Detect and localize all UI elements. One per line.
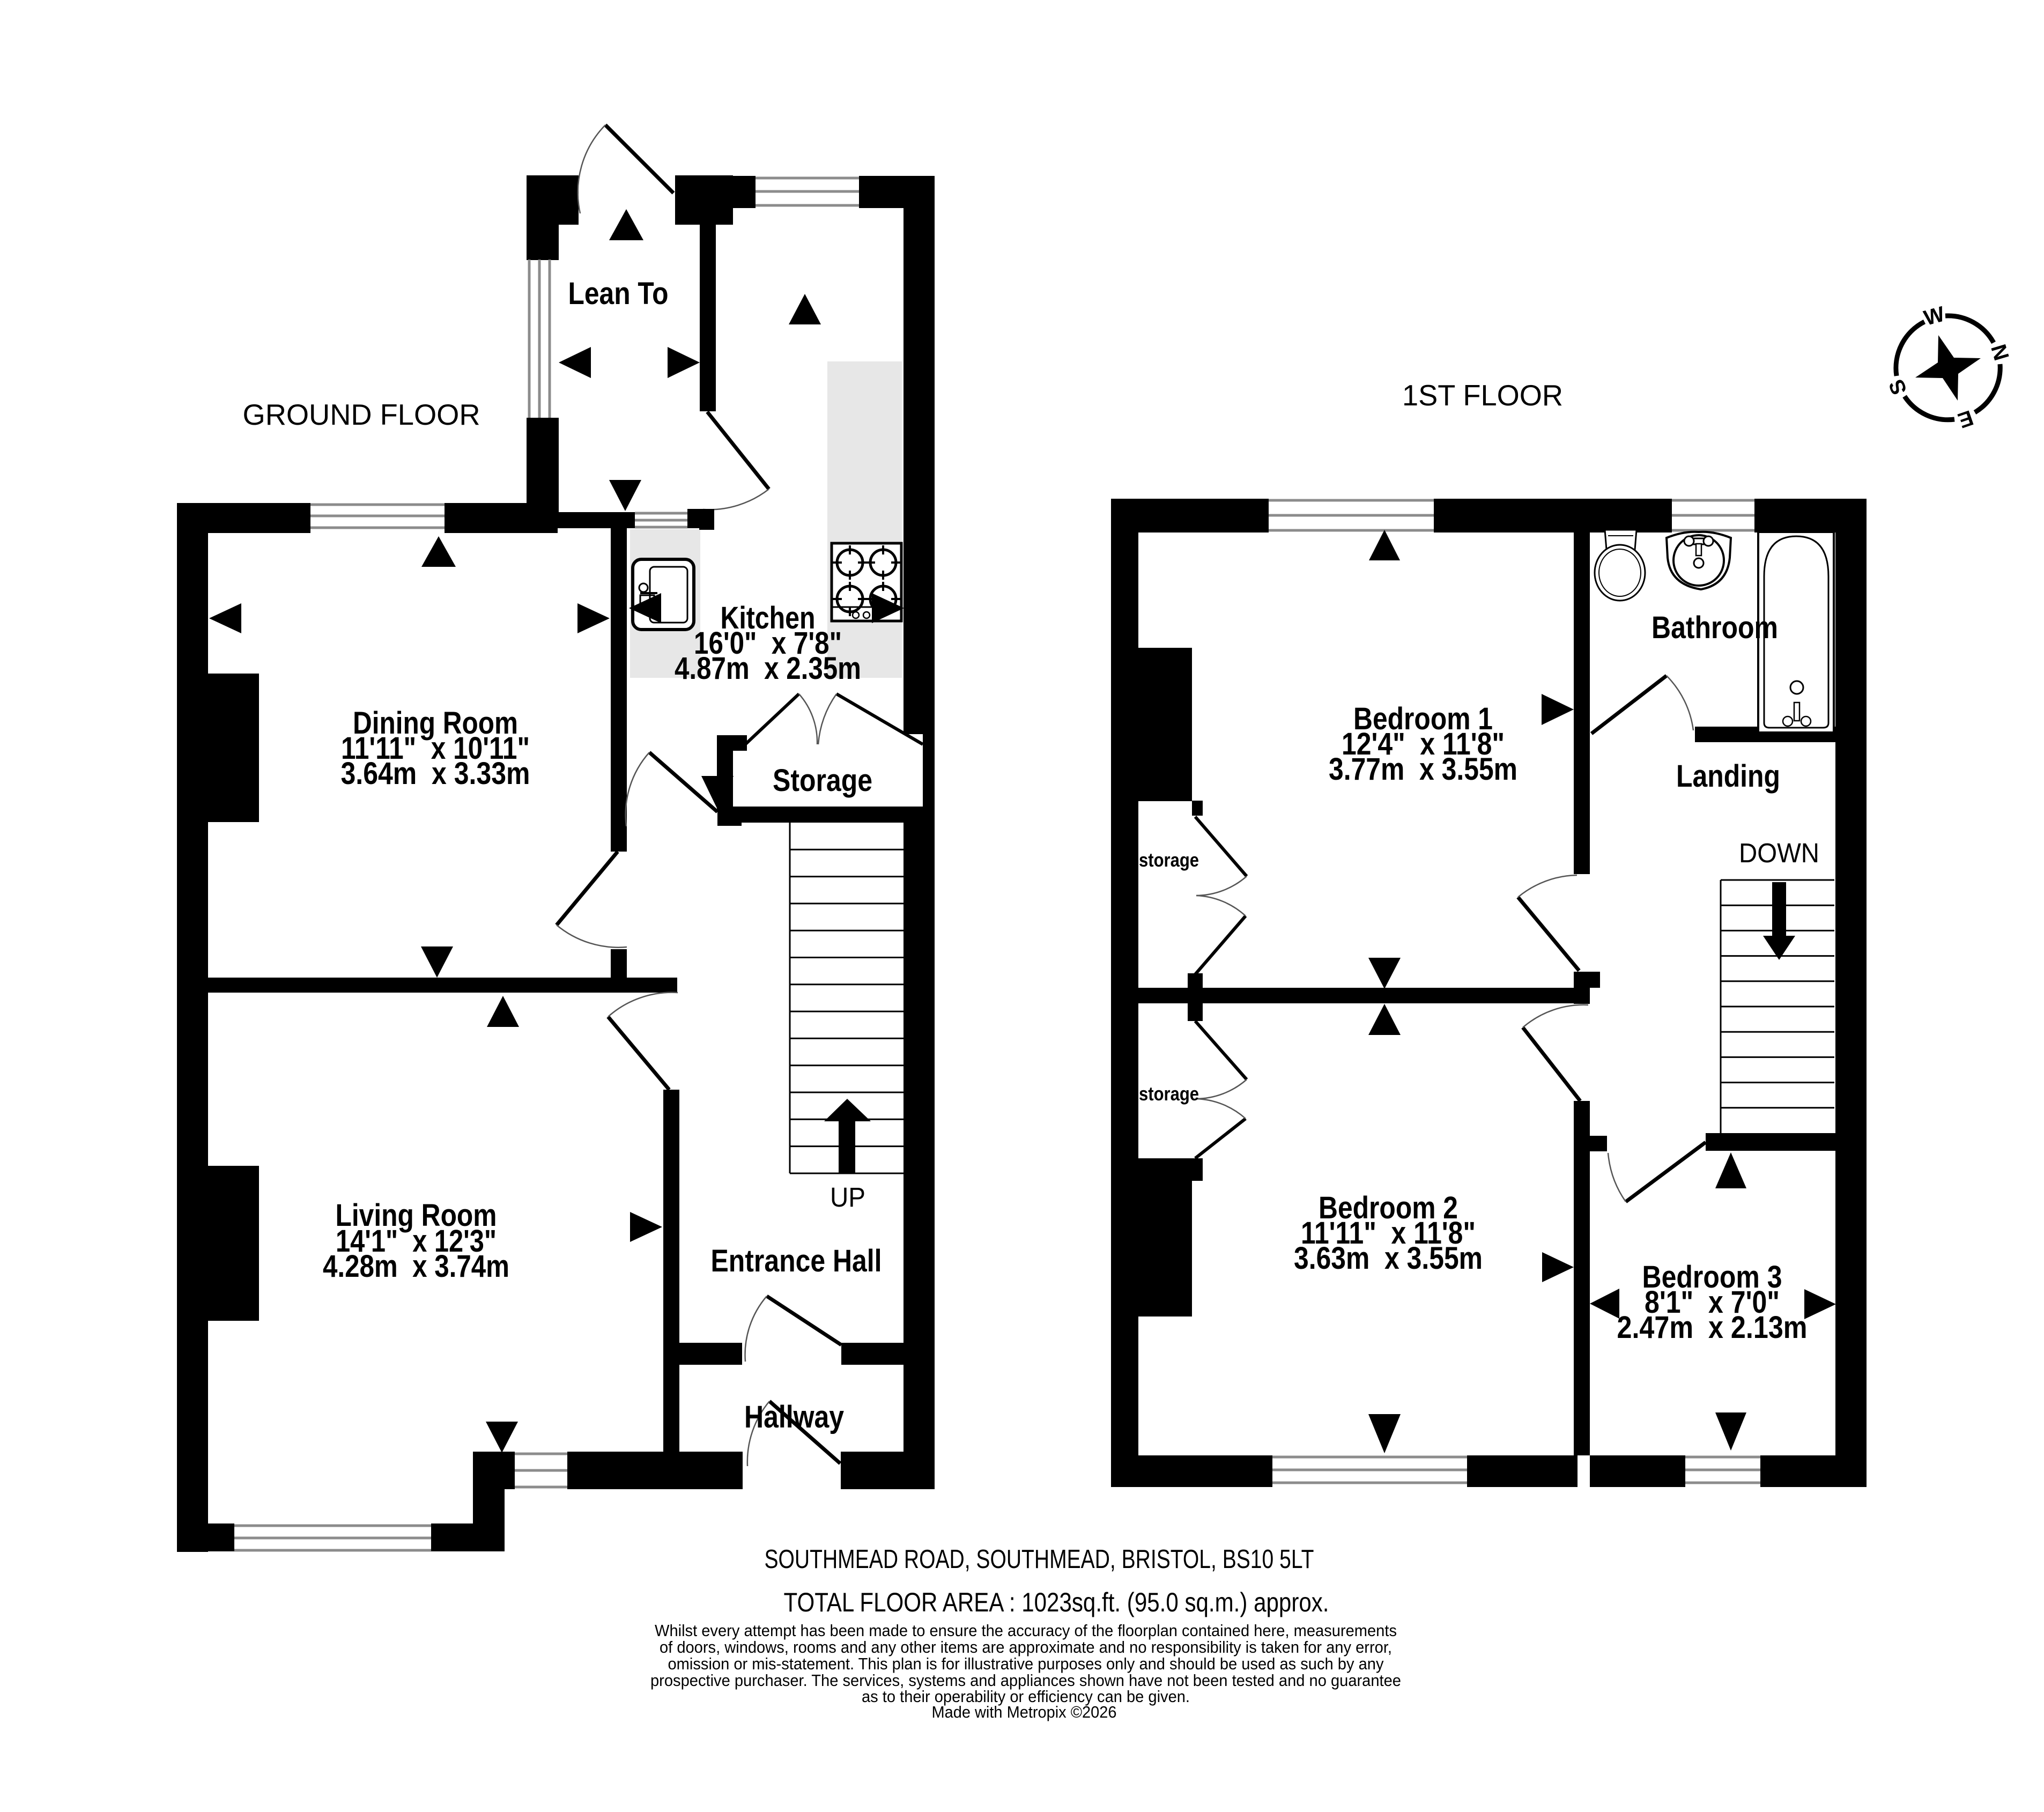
svg-text:Landing: Landing: [1676, 759, 1780, 794]
svg-text:UP: UP: [830, 1182, 865, 1212]
svg-text:Lean To: Lean To: [568, 276, 669, 311]
svg-text:prospective purchaser. The ser: prospective purchaser. The services, sys…: [650, 1672, 1401, 1690]
svg-text:GROUND FLOOR: GROUND FLOOR: [243, 398, 480, 431]
svg-text:storage: storage: [1139, 849, 1199, 871]
svg-text:of doors, windows, rooms and a: of doors, windows, rooms and any other i…: [660, 1638, 1392, 1656]
svg-text:Entrance Hall: Entrance Hall: [711, 1244, 882, 1278]
svg-text:Bathroom: Bathroom: [1652, 610, 1778, 645]
svg-text:3.63m x 3.55m: 3.63m x 3.55m: [1294, 1241, 1483, 1276]
svg-text:DOWN: DOWN: [1739, 838, 1819, 868]
svg-text:Hallway: Hallway: [744, 1400, 844, 1434]
svg-text:storage: storage: [1139, 1083, 1199, 1105]
svg-text:Made with Metropix ©2026: Made with Metropix ©2026: [932, 1703, 1117, 1721]
svg-text:Storage: Storage: [773, 763, 872, 798]
svg-text:4.87m x 2.35m: 4.87m x 2.35m: [675, 651, 861, 686]
svg-text:TOTAL FLOOR AREA : 1023sq.ft.: TOTAL FLOOR AREA : 1023sq.ft. (95.0 sq.m…: [784, 1587, 1329, 1617]
svg-text:omission or mis-statement. Thi: omission or mis-statement. This plan is …: [668, 1655, 1384, 1673]
svg-text:2.47m x 2.13m: 2.47m x 2.13m: [1617, 1310, 1808, 1345]
svg-text:Whilst every attempt has been: Whilst every attempt has been made to en…: [655, 1622, 1397, 1640]
svg-text:1ST FLOOR: 1ST FLOOR: [1402, 379, 1563, 412]
svg-text:3.64m x 3.33m: 3.64m x 3.33m: [341, 756, 530, 791]
svg-text:4.28m x 3.74m: 4.28m x 3.74m: [323, 1249, 509, 1284]
svg-text:SOUTHMEAD ROAD, SOUTHMEAD, BRI: SOUTHMEAD ROAD, SOUTHMEAD, BRISTOL, BS10…: [765, 1545, 1314, 1574]
svg-text:3.77m x 3.55m: 3.77m x 3.55m: [1329, 752, 1517, 787]
